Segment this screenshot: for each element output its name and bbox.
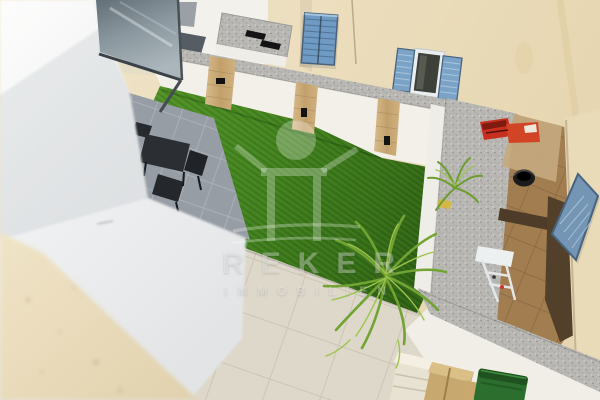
plant-pot	[513, 170, 535, 187]
courtyard-photo: REKER IMMOBILIEN	[0, 0, 600, 400]
window-shutters-closed	[299, 13, 340, 69]
photo-scene	[0, 0, 600, 400]
